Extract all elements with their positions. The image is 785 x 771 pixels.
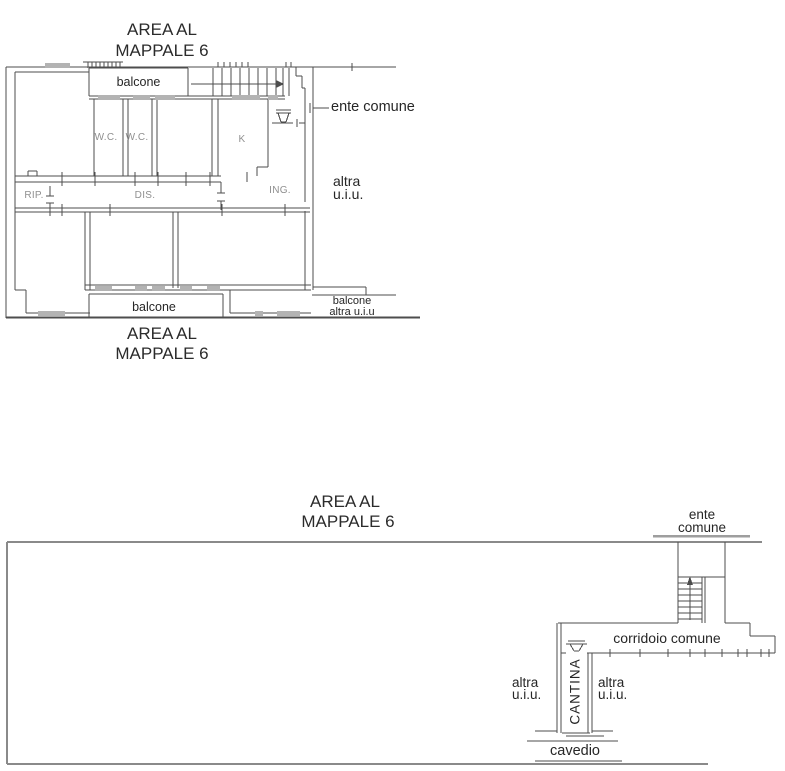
altra-uiu-label-upper: altra u.i.u. — [333, 175, 363, 201]
dis-label: DIS. — [127, 191, 163, 201]
cadastral-floor-plan-sheet: AREA AL MAPPALE 6 balcone W.C. W.C. K RI… — [0, 0, 785, 771]
balcone-altra-uiu-label: balcone altra u.i.u — [312, 296, 392, 318]
lower-plan-title-line1: AREA AL — [295, 493, 395, 510]
lower-plan-drawing — [7, 536, 775, 764]
ing-label: ING. — [262, 186, 298, 196]
lower-plan-title-line2: MAPPALE 6 — [293, 513, 403, 530]
balcone-bottom-label: balcone — [104, 301, 204, 314]
kitchen-label: K — [231, 135, 253, 145]
ente-comune-lower-line2: comune — [662, 521, 742, 534]
cavedio-label: cavedio — [530, 744, 620, 759]
upper-plan-windows — [38, 63, 300, 316]
balcone-altra-line2: altra u.i.u — [312, 307, 392, 318]
altra-uiu-label-basement-left: altra u.i.u. — [512, 677, 541, 701]
wc-right-label: W.C. — [124, 133, 150, 143]
rip-label: RIP. — [16, 191, 52, 201]
basement-stairwell — [678, 542, 725, 623]
ente-comune-label-lower: ente comune — [662, 508, 742, 534]
floor-plan-linework — [0, 0, 785, 771]
corridoio-comune-label: corridoio comune — [602, 631, 732, 645]
cantina-label: CANTINA — [568, 652, 583, 732]
altra-uiu-upper-line2: u.i.u. — [333, 188, 363, 201]
wc-left-label: W.C. — [92, 133, 120, 143]
cantina-door-icon — [566, 641, 587, 651]
upper-plan-title-line1: AREA AL — [112, 21, 212, 38]
altra-right-line2: u.i.u. — [598, 689, 627, 701]
upper-plan-stairs — [191, 68, 284, 96]
altra-uiu-label-basement-right: altra u.i.u. — [598, 677, 627, 701]
upper-plan-title-line2: MAPPALE 6 — [107, 42, 217, 59]
upper-plan-caption-line2: MAPPALE 6 — [107, 345, 217, 362]
upper-plan-caption-line1: AREA AL — [112, 325, 212, 342]
entry-door-icon — [276, 110, 291, 122]
altra-left-line2: u.i.u. — [512, 689, 541, 701]
balcone-top-label: balcone — [89, 76, 188, 89]
ente-comune-label-upper: ente comune — [331, 100, 415, 115]
